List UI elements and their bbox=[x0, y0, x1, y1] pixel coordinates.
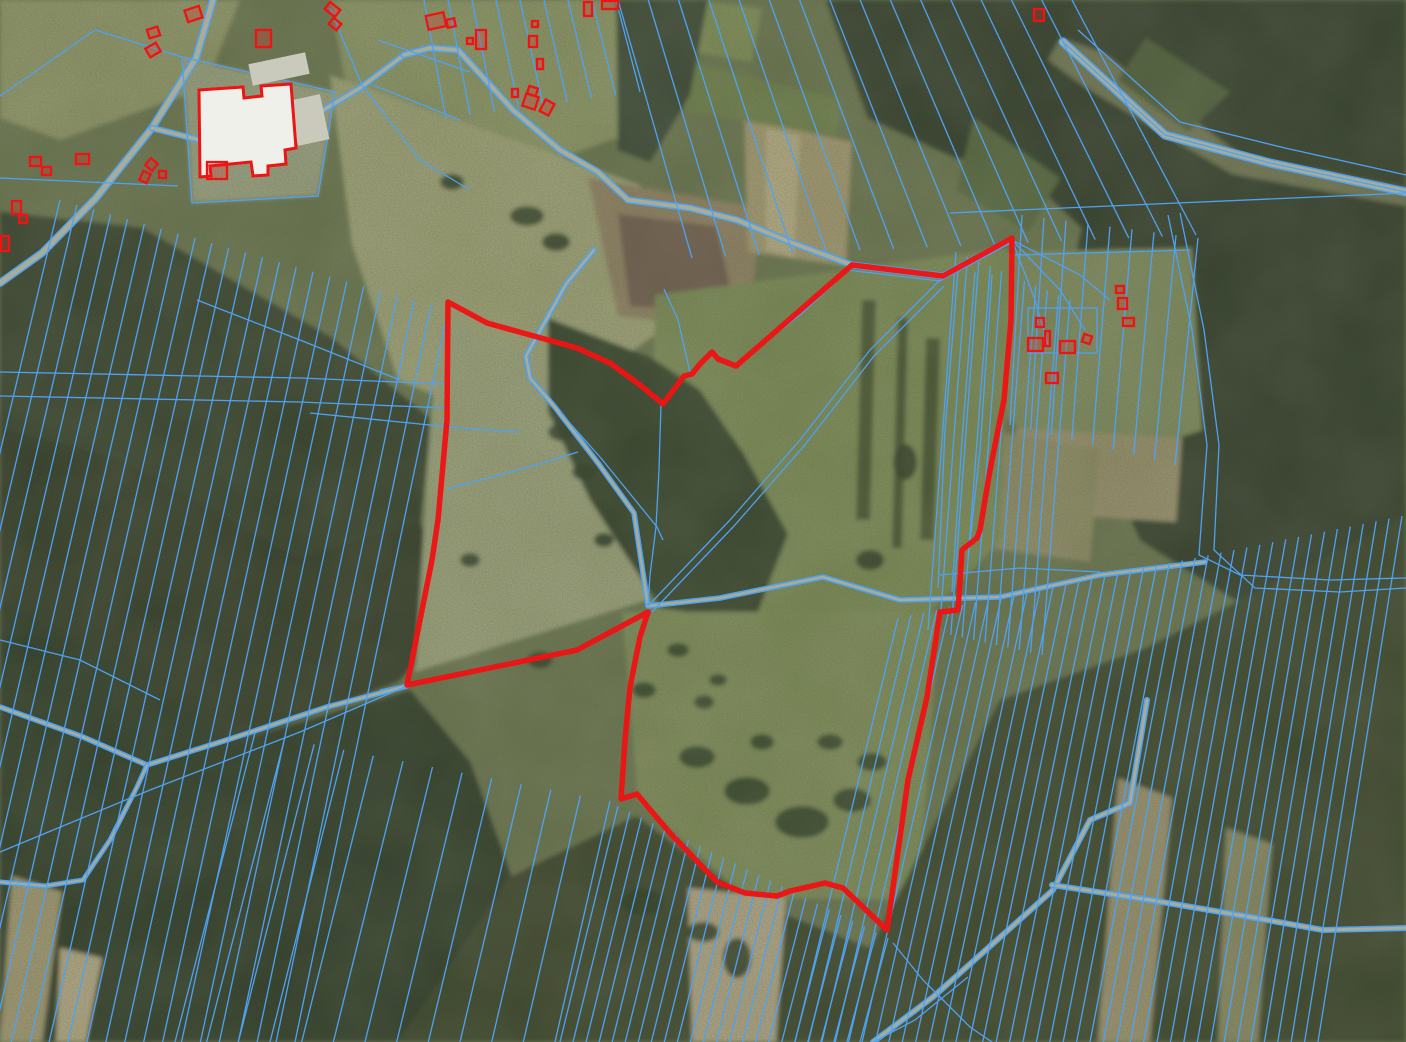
building-outline bbox=[1046, 373, 1058, 383]
building-outline bbox=[1, 236, 9, 251]
building-outline bbox=[529, 36, 537, 47]
building-outline bbox=[1036, 318, 1044, 327]
building-outline bbox=[446, 18, 455, 27]
building-outline bbox=[537, 59, 543, 69]
building-outline bbox=[527, 86, 538, 96]
building-outline bbox=[1028, 338, 1043, 351]
building-outline bbox=[256, 30, 271, 47]
building-outline bbox=[147, 27, 160, 39]
building-outline bbox=[159, 171, 166, 178]
building-outline bbox=[512, 89, 518, 97]
building-outline bbox=[19, 215, 27, 223]
building-outline bbox=[1082, 334, 1092, 344]
building-outline bbox=[476, 30, 486, 49]
building-outline bbox=[1060, 341, 1075, 353]
building-outline bbox=[532, 21, 538, 27]
building-outline bbox=[467, 38, 473, 44]
building-outline bbox=[12, 201, 21, 214]
building-outline bbox=[1118, 298, 1127, 309]
map-canvas[interactable] bbox=[0, 0, 1406, 1042]
building-outline bbox=[76, 154, 89, 164]
building-outline bbox=[426, 12, 447, 29]
aerial-cadastral-map[interactable] bbox=[0, 0, 1406, 1042]
building-outline bbox=[1045, 331, 1050, 346]
building-outline bbox=[42, 167, 51, 175]
building-outline bbox=[1116, 286, 1124, 293]
building-outline bbox=[30, 157, 41, 166]
building-outline bbox=[207, 162, 227, 179]
building-outline bbox=[602, 1, 618, 9]
building-outline bbox=[584, 2, 592, 16]
building-outline bbox=[1123, 318, 1134, 326]
building-outline bbox=[1034, 9, 1044, 21]
